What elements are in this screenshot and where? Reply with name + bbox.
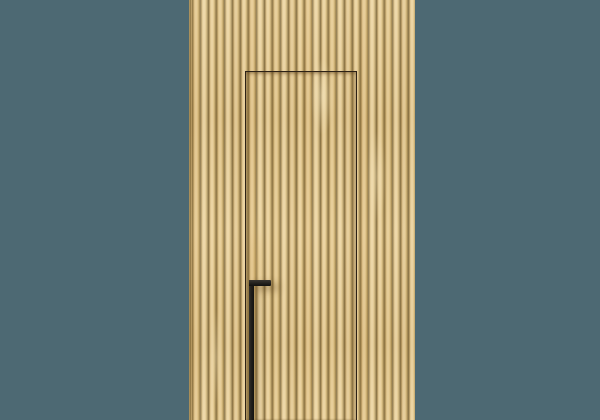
- door-handle-bar: [249, 280, 254, 420]
- door-handle-cap: [249, 280, 271, 286]
- scene-background: [0, 0, 600, 420]
- concealed-door-seam: [245, 71, 357, 420]
- wood-slat-wall: [189, 0, 415, 420]
